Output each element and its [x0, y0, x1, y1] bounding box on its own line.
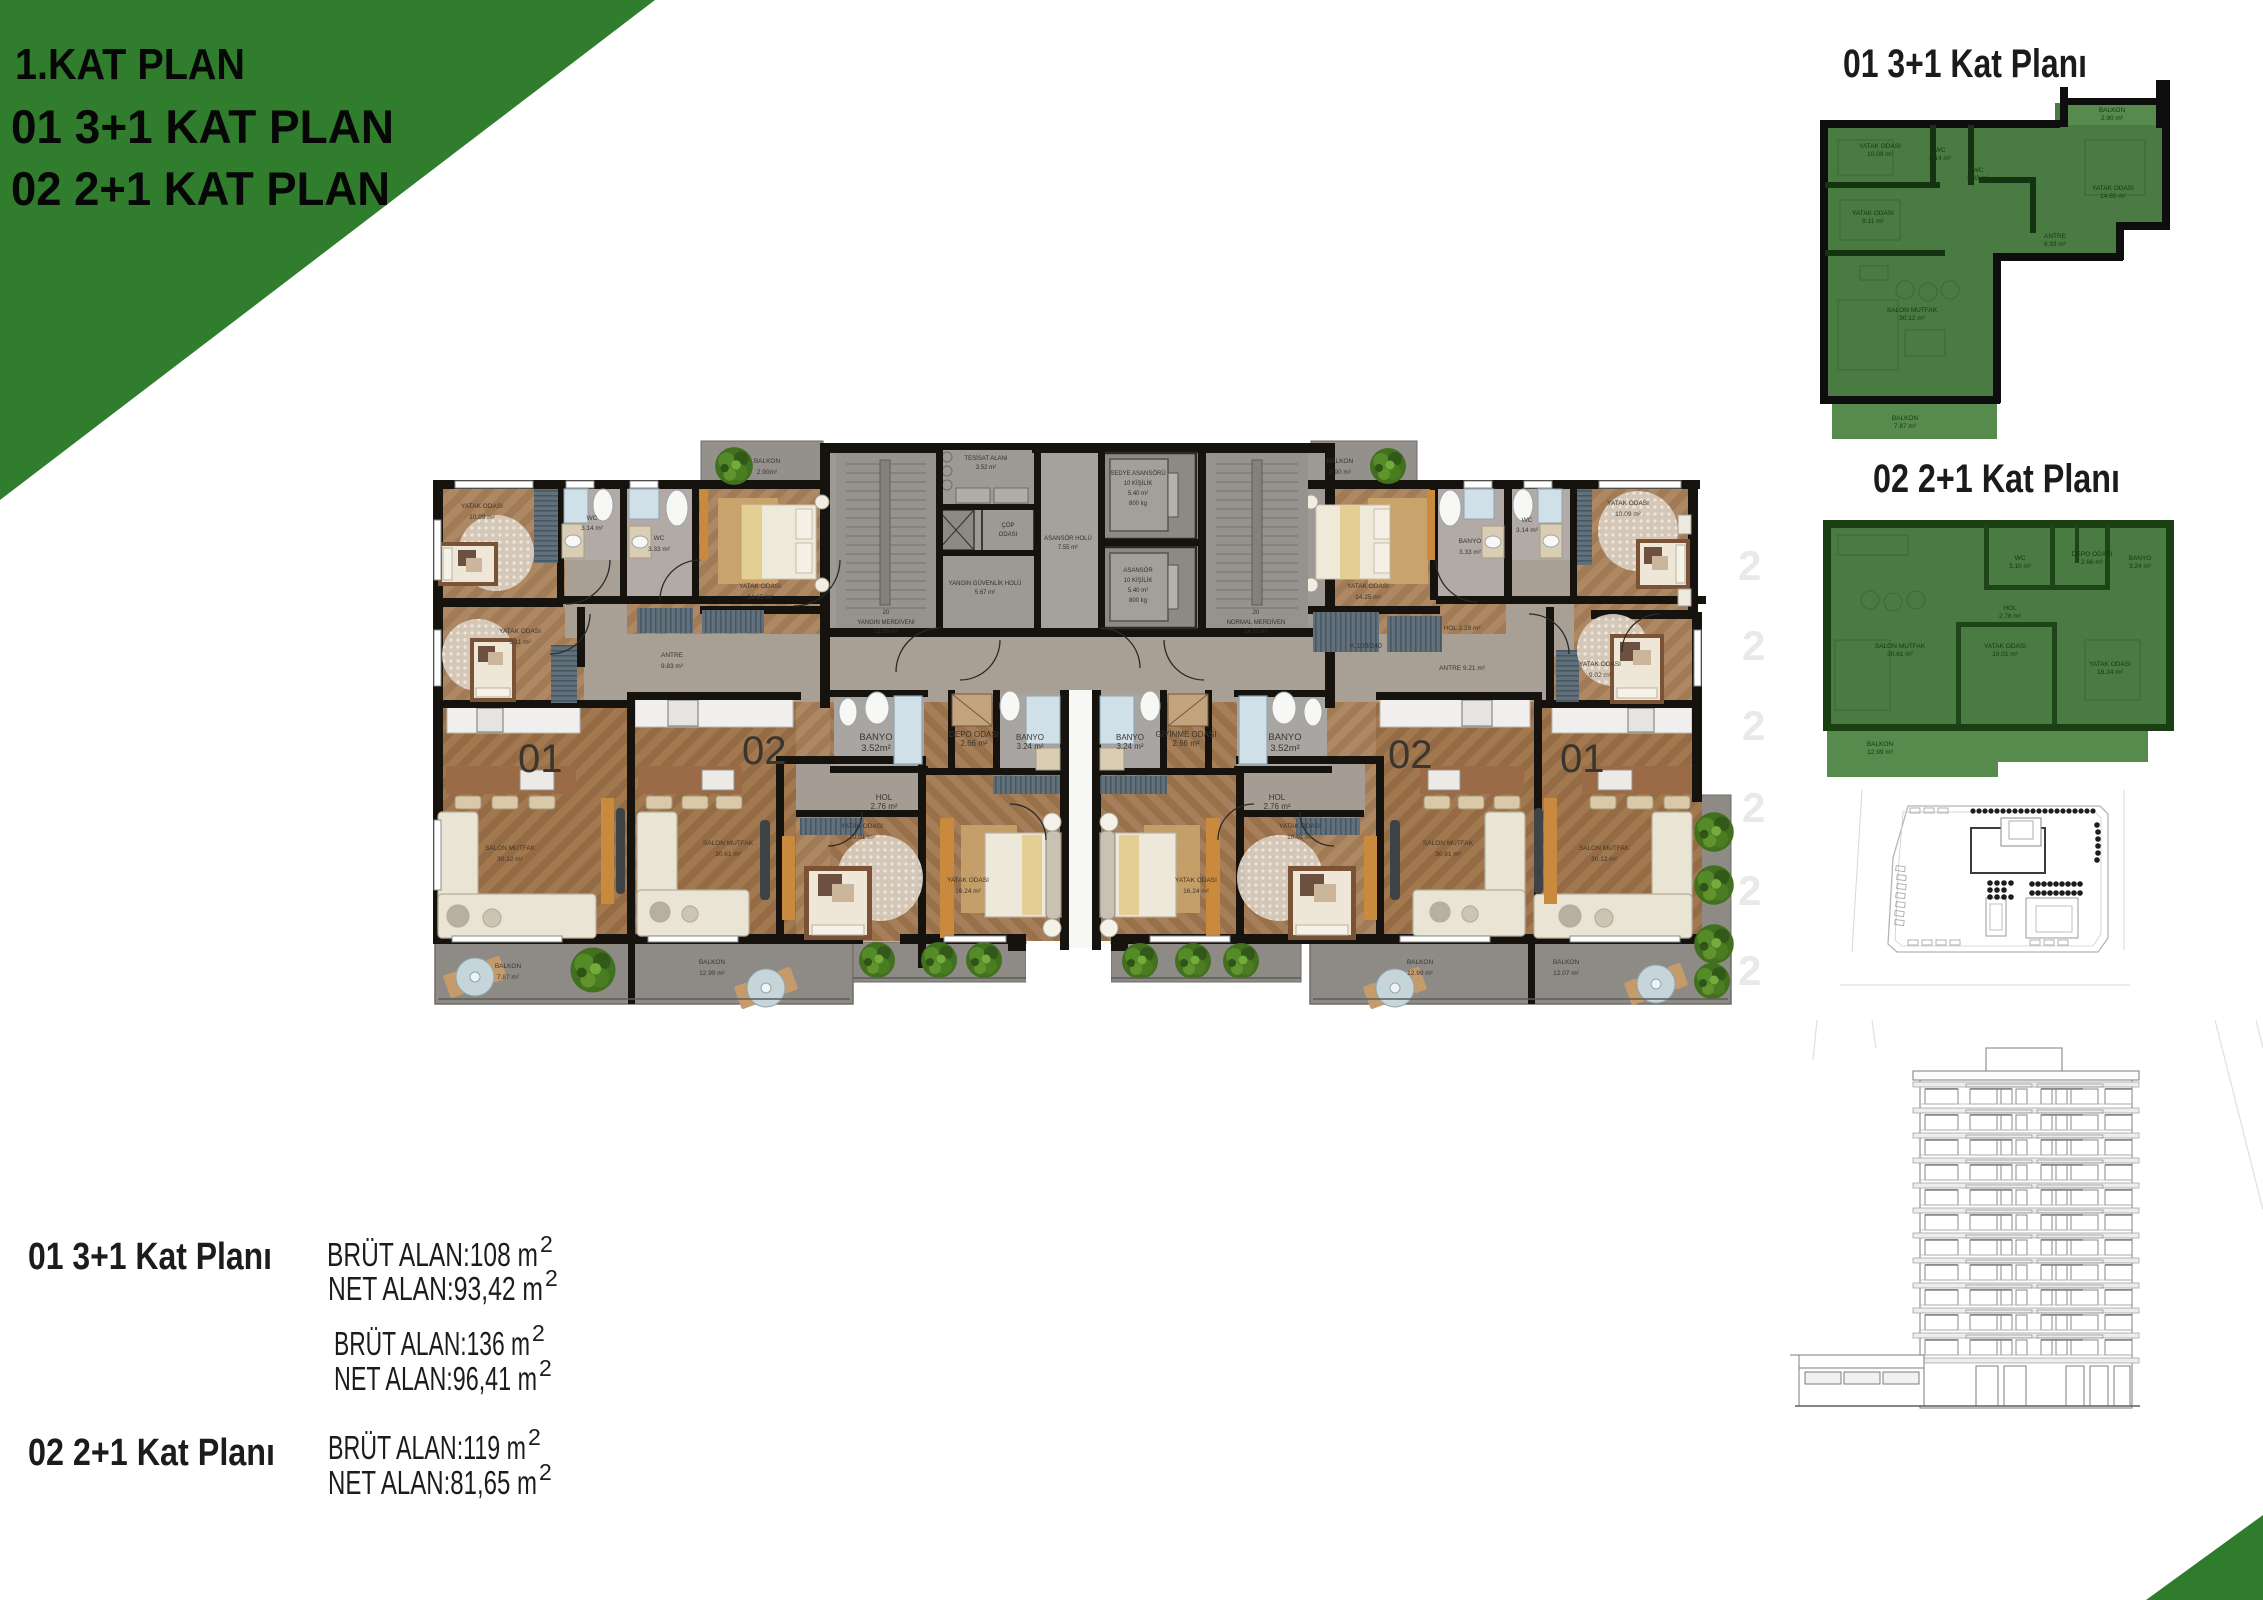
svg-text:BALKON: BALKON	[495, 963, 522, 970]
svg-text:NET ALAN:96,41 m: NET ALAN:96,41 m	[334, 1360, 537, 1397]
svg-text:7.55 m²: 7.55 m²	[1058, 545, 1078, 551]
svg-text:10.08 m²: 10.08 m²	[1867, 151, 1893, 158]
svg-text:BALKON: BALKON	[1407, 959, 1434, 966]
svg-text:5.40 m²: 5.40 m²	[1128, 491, 1148, 497]
svg-text:2: 2	[545, 1265, 558, 1291]
svg-text:3.52m²: 3.52m²	[1270, 743, 1300, 754]
svg-text:16.24 m²: 16.24 m²	[1183, 888, 1209, 895]
svg-text:ASANSÖR HOLÜ: ASANSÖR HOLÜ	[1044, 535, 1092, 542]
svg-text:YATAK ODASI: YATAK ODASI	[841, 823, 883, 830]
svg-text:YATAK ODASI: YATAK ODASI	[947, 877, 989, 884]
svg-text:3.24 m²: 3.24 m²	[1116, 742, 1143, 751]
svg-text:BALKON: BALKON	[1553, 959, 1580, 966]
svg-text:2.90m²: 2.90m²	[757, 469, 778, 476]
svg-text:9.83 m²: 9.83 m²	[661, 663, 684, 670]
svg-text:30.61 m²: 30.61 m²	[1887, 651, 1913, 658]
svg-text:2: 2	[1738, 542, 1761, 589]
svg-text:HOL: HOL	[876, 793, 893, 802]
svg-text:2.76 m²: 2.76 m²	[870, 802, 897, 811]
svg-text:30.61 m²: 30.61 m²	[715, 851, 741, 858]
svg-text:YATAK ODASI: YATAK ODASI	[1279, 823, 1321, 830]
svg-text:2.66 m²: 2.66 m²	[1172, 739, 1199, 748]
svg-text:10.01 m²: 10.01 m²	[1287, 834, 1313, 841]
svg-text:YATAK ODASI: YATAK ODASI	[2089, 661, 2131, 668]
svg-text:3.33 m²: 3.33 m²	[1967, 175, 1990, 182]
svg-text:TESİSAT ALANI: TESİSAT ALANI	[964, 455, 1007, 462]
svg-text:2: 2	[539, 1355, 552, 1381]
svg-text:30.12 m²: 30.12 m²	[1591, 856, 1617, 863]
svg-text:YANGIN GÜVENLİK HOLÜ: YANGIN GÜVENLİK HOLÜ	[949, 580, 1022, 587]
svg-text:2.90 m²: 2.90 m²	[1329, 469, 1352, 476]
svg-text:SALON MUTFAK: SALON MUTFAK	[703, 840, 754, 847]
svg-text:01: 01	[518, 737, 563, 781]
svg-text:8.93 m²: 8.93 m²	[2044, 241, 2067, 248]
svg-text:ÇÖP: ÇÖP	[1001, 522, 1014, 529]
svg-text:9.02 m²: 9.02 m²	[1589, 672, 1612, 679]
svg-text:SALON MUTFAK: SALON MUTFAK	[1887, 307, 1938, 314]
svg-text:DEPO ODASI: DEPO ODASI	[2072, 551, 2113, 558]
svg-text:BANYO: BANYO	[1116, 733, 1144, 742]
svg-text:2: 2	[539, 1459, 552, 1485]
svg-text:3.33 m²: 3.33 m²	[648, 546, 671, 553]
svg-text:BANYO: BANYO	[1016, 733, 1044, 742]
svg-text:HOL 2.28 m²: HOL 2.28 m²	[1444, 625, 1482, 632]
svg-text:YATAK ODASI: YATAK ODASI	[1859, 143, 1901, 150]
svg-text:HOL: HOL	[2003, 605, 2017, 612]
svg-text:BALKON: BALKON	[1867, 741, 1894, 748]
svg-text:12.99 m²: 12.99 m²	[699, 970, 725, 977]
svg-text:02: 02	[1388, 733, 1433, 777]
svg-text:01 3+1 Kat Planı: 01 3+1 Kat Planı	[28, 1236, 272, 1278]
svg-text:K.100/240: K.100/240	[1350, 643, 1382, 650]
svg-text:WC: WC	[654, 535, 665, 542]
svg-text:2: 2	[1742, 784, 1765, 831]
svg-text:YATAK ODASI: YATAK ODASI	[461, 503, 503, 510]
svg-text:10.01 m²: 10.01 m²	[1992, 651, 2018, 658]
svg-text:YATAK ODASI: YATAK ODASI	[1579, 661, 1621, 668]
svg-text:YATAK ODASI: YATAK ODASI	[1852, 210, 1894, 217]
svg-text:BALKON: BALKON	[2099, 107, 2126, 114]
svg-text:BANYO: BANYO	[1268, 732, 1301, 743]
svg-text:BRÜT ALAN:119 m: BRÜT ALAN:119 m	[328, 1429, 526, 1466]
svg-text:YATAK ODASI: YATAK ODASI	[499, 628, 541, 635]
svg-text:3.10 m²: 3.10 m²	[2009, 563, 2032, 570]
svg-text:7.87 m²: 7.87 m²	[497, 974, 520, 981]
svg-text:WC: WC	[587, 515, 598, 522]
svg-text:12.07 m²: 12.07 m²	[1553, 970, 1579, 977]
svg-text:1.KAT PLAN: 1.KAT PLAN	[15, 40, 245, 89]
svg-text:SALON MUTFAK: SALON MUTFAK	[485, 845, 536, 852]
svg-text:14.65 m²: 14.65 m²	[747, 594, 773, 601]
svg-text:16.24 m²: 16.24 m²	[2097, 669, 2123, 676]
svg-text:02 2+1 Kat Planı: 02 2+1 Kat Planı	[28, 1432, 275, 1474]
svg-text:YATAK ODASI: YATAK ODASI	[2092, 185, 2134, 192]
svg-text:ANTRE 9.21 m²: ANTRE 9.21 m²	[1439, 665, 1486, 672]
svg-text:YATAK ODASI: YATAK ODASI	[1175, 877, 1217, 884]
svg-text:WC: WC	[2015, 555, 2026, 562]
svg-text:02: 02	[742, 729, 787, 773]
svg-text:3.24 m²: 3.24 m²	[1016, 742, 1043, 751]
svg-text:BALKON: BALKON	[754, 458, 781, 465]
svg-text:BANYO: BANYO	[1459, 538, 1482, 545]
svg-text:ASANSÖR: ASANSÖR	[1123, 567, 1153, 574]
svg-text:800 kg: 800 kg	[1129, 598, 1147, 604]
svg-text:14.51 m²: 14.51 m²	[1244, 629, 1268, 635]
svg-text:14.65 m²: 14.65 m²	[2100, 193, 2126, 200]
svg-text:YATAK ODASI: YATAK ODASI	[1347, 583, 1389, 590]
svg-text:2: 2	[528, 1424, 541, 1450]
svg-text:14.25 m²: 14.25 m²	[1355, 594, 1381, 601]
svg-text:BRÜT ALAN:108 m: BRÜT ALAN:108 m	[327, 1236, 538, 1273]
svg-text:5.67 m²: 5.67 m²	[975, 590, 995, 596]
svg-text:20: 20	[883, 610, 890, 616]
svg-text:30.12 m²: 30.12 m²	[497, 856, 523, 863]
svg-text:2: 2	[1738, 867, 1761, 914]
svg-text:3.52m²: 3.52m²	[861, 743, 891, 754]
svg-text:WC: WC	[1935, 147, 1946, 154]
svg-text:01: 01	[1560, 737, 1605, 781]
svg-text:NET ALAN:93,42 m: NET ALAN:93,42 m	[328, 1270, 543, 1307]
svg-text:DEPO ODASI: DEPO ODASI	[949, 730, 999, 739]
svg-text:10.09 m²: 10.09 m²	[469, 514, 495, 521]
svg-text:10.01 m²: 10.01 m²	[849, 834, 875, 841]
svg-text:SALON MUTFAK: SALON MUTFAK	[1875, 643, 1926, 650]
svg-text:12.99 m²: 12.99 m²	[1867, 749, 1893, 756]
svg-text:YATAK ODASI: YATAK ODASI	[1607, 500, 1649, 507]
svg-text:2.76 m²: 2.76 m²	[1999, 613, 2022, 620]
svg-text:YATAK ODASI: YATAK ODASI	[1984, 643, 2026, 650]
svg-text:SALON MUTFAK: SALON MUTFAK	[1423, 840, 1474, 847]
svg-text:20: 20	[1253, 610, 1260, 616]
svg-text:02 2+1 Kat Planı: 02 2+1 Kat Planı	[1873, 457, 2120, 501]
svg-text:10.09 m²: 10.09 m²	[1615, 511, 1641, 518]
svg-text:SALON MUTFAK: SALON MUTFAK	[1579, 845, 1630, 852]
svg-text:30.12 m²: 30.12 m²	[1899, 315, 1925, 322]
svg-text:BALKON: BALKON	[1327, 458, 1354, 465]
svg-text:WC: WC	[1973, 167, 1984, 174]
svg-text:10 KİŞİLİK: 10 KİŞİLİK	[1124, 577, 1153, 584]
svg-text:10 KİŞİLİK: 10 KİŞİLİK	[1124, 480, 1153, 487]
svg-text:SEDYE ASANSÖRÜ: SEDYE ASANSÖRÜ	[1110, 470, 1165, 477]
svg-text:2: 2	[1742, 702, 1765, 749]
svg-text:12.99 m²: 12.99 m²	[1407, 970, 1433, 977]
svg-text:02 2+1 KAT PLAN: 02 2+1 KAT PLAN	[11, 162, 390, 215]
svg-text:3.52 m²: 3.52 m²	[976, 465, 996, 471]
svg-text:ODASI: ODASI	[999, 532, 1018, 538]
svg-text:ANTRE: ANTRE	[2044, 233, 2067, 240]
svg-text:2: 2	[1742, 622, 1765, 669]
svg-text:ANTRE: ANTRE	[661, 652, 684, 659]
svg-text:BANYO: BANYO	[859, 732, 892, 743]
svg-text:BRÜT ALAN:136 m: BRÜT ALAN:136 m	[334, 1325, 530, 1362]
svg-text:5.40 m²: 5.40 m²	[1128, 588, 1148, 594]
svg-text:9.11 m²: 9.11 m²	[1862, 218, 1884, 225]
svg-text:16.24 m²: 16.24 m²	[955, 888, 981, 895]
svg-text:2: 2	[532, 1320, 545, 1346]
svg-text:YANGIN MERDİVENİ: YANGIN MERDİVENİ	[857, 619, 915, 626]
svg-text:GİYİNME ODASI: GİYİNME ODASI	[1156, 730, 1217, 739]
svg-text:NET ALAN:81,65 m: NET ALAN:81,65 m	[328, 1464, 537, 1501]
svg-text:01 3+1 Kat Planı: 01 3+1 Kat Planı	[1843, 42, 2087, 86]
svg-text:7.87 m²: 7.87 m²	[1894, 423, 1917, 430]
svg-text:BALKON: BALKON	[1892, 415, 1919, 422]
svg-text:12.96 m²: 12.96 m²	[874, 629, 898, 635]
svg-text:3.14 m²: 3.14 m²	[1516, 527, 1539, 534]
svg-text:2.66 m²: 2.66 m²	[960, 739, 987, 748]
svg-text:2.90 m²: 2.90 m²	[2101, 115, 2124, 122]
svg-text:2.76 m²: 2.76 m²	[1263, 802, 1290, 811]
svg-text:2.66 m²: 2.66 m²	[2081, 559, 2104, 566]
svg-text:30.81 m²: 30.81 m²	[1435, 851, 1461, 858]
svg-text:01 3+1 KAT PLAN: 01 3+1 KAT PLAN	[11, 100, 394, 153]
svg-text:WC: WC	[1522, 517, 1533, 524]
svg-text:BALKON: BALKON	[699, 959, 726, 966]
svg-text:NORMAL MERDİVEN: NORMAL MERDİVEN	[1227, 619, 1286, 626]
svg-text:3.24 m²: 3.24 m²	[2129, 563, 2152, 570]
svg-text:3.14 m²: 3.14 m²	[581, 525, 604, 532]
svg-text:BANYO: BANYO	[2129, 555, 2152, 562]
svg-text:2: 2	[1738, 947, 1761, 994]
svg-text:2: 2	[540, 1231, 553, 1257]
svg-text:800 kg: 800 kg	[1129, 501, 1147, 507]
svg-text:YATAK ODASI: YATAK ODASI	[739, 583, 781, 590]
svg-text:3.14 m²: 3.14 m²	[1929, 155, 1952, 162]
svg-text:3.33 m²: 3.33 m²	[1459, 549, 1482, 556]
svg-text:9.11 m²: 9.11 m²	[509, 639, 531, 646]
svg-text:HOL: HOL	[1269, 793, 1286, 802]
